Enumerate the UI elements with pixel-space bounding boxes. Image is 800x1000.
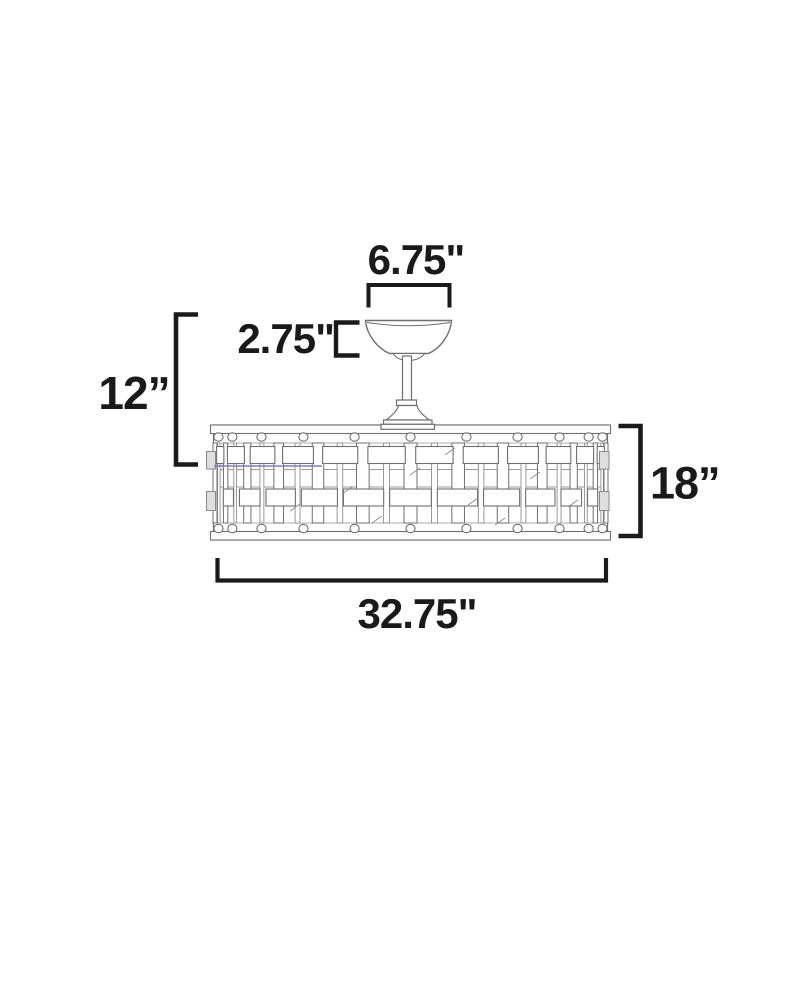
rivet xyxy=(257,433,266,441)
weave-vertical-strap xyxy=(404,443,417,523)
weave-horizontal-slat xyxy=(577,447,594,464)
rivet xyxy=(555,524,564,532)
weave-horizontal-slat xyxy=(390,489,432,506)
weave-horizontal-slat xyxy=(561,489,582,506)
rivet xyxy=(406,524,415,532)
weave-horizontal-slat xyxy=(223,489,233,506)
dimension-diagram: 6.75" 2.75" 12” 18” 32.75" xyxy=(0,0,800,1000)
bracket-drum-width xyxy=(218,558,607,581)
weave-horizontal-slat xyxy=(283,447,314,464)
dim-label-drum-width: 32.75" xyxy=(357,593,476,635)
weave-vertical-strap xyxy=(452,443,465,523)
rivet xyxy=(257,524,266,532)
bracket-canopy-height xyxy=(336,323,360,356)
weave-horizontal-slat xyxy=(250,447,275,464)
weave-horizontal-slat xyxy=(546,447,571,464)
dim-label-drum-height: 18” xyxy=(650,461,720,506)
weave-horizontal-slat xyxy=(301,489,337,506)
rivet xyxy=(584,433,593,441)
rivet xyxy=(299,524,308,532)
weave-pattern xyxy=(213,443,608,525)
downrod xyxy=(403,356,412,401)
rivet xyxy=(598,433,607,441)
bracket-top-height xyxy=(176,315,198,465)
canopy xyxy=(366,321,452,361)
rivet xyxy=(513,433,522,441)
rivet xyxy=(598,524,607,532)
rivet xyxy=(228,433,237,441)
weave-horizontal-slat xyxy=(588,489,598,506)
rivet xyxy=(406,433,415,441)
weave-horizontal-slat xyxy=(343,489,383,506)
downrod-tube xyxy=(403,356,412,401)
weave-horizontal-slat xyxy=(463,447,498,464)
rivet xyxy=(228,524,237,532)
bracket-canopy-width xyxy=(369,285,450,308)
rivet xyxy=(350,433,359,441)
rivet xyxy=(555,433,564,441)
right-tab xyxy=(600,452,610,470)
weave-vertical-strap xyxy=(357,443,370,523)
rivet xyxy=(214,433,223,441)
weave-horizontal-slat xyxy=(484,489,520,506)
coupler-flange-upper xyxy=(384,420,433,424)
coupler xyxy=(381,400,435,429)
dim-label-top-height: 12” xyxy=(98,370,169,416)
weave-horizontal-slat xyxy=(323,447,358,464)
rivet xyxy=(462,433,471,441)
weave-horizontal-slat xyxy=(416,447,453,464)
rivet xyxy=(214,524,223,532)
dim-label-canopy-width: 6.75" xyxy=(368,239,465,281)
weave-horizontal-slat xyxy=(239,489,260,506)
weave-horizontal-slat xyxy=(526,489,555,506)
coupler-bell xyxy=(386,406,430,421)
weave-horizontal-slat xyxy=(368,447,405,464)
weave-vertical-strap xyxy=(312,443,323,523)
rivet xyxy=(513,524,522,532)
rivet xyxy=(350,524,359,532)
rivet xyxy=(462,524,471,532)
coupler-collar xyxy=(397,400,417,406)
weave-horizontal-slat xyxy=(217,447,224,464)
dim-label-canopy-height: 2.75" xyxy=(237,318,334,360)
rivet xyxy=(584,524,593,532)
weave-horizontal-slat xyxy=(437,489,477,506)
coupler-flange-lower xyxy=(381,424,435,429)
rivet xyxy=(299,433,308,441)
weave-vertical-strap xyxy=(497,443,508,523)
weave-horizontal-slat xyxy=(227,447,244,464)
bracket-drum-height xyxy=(619,426,641,536)
weave-horizontal-slat xyxy=(266,489,295,506)
weave-horizontal-slat xyxy=(508,447,539,464)
right-tab xyxy=(600,492,610,511)
left-tab xyxy=(207,492,216,511)
